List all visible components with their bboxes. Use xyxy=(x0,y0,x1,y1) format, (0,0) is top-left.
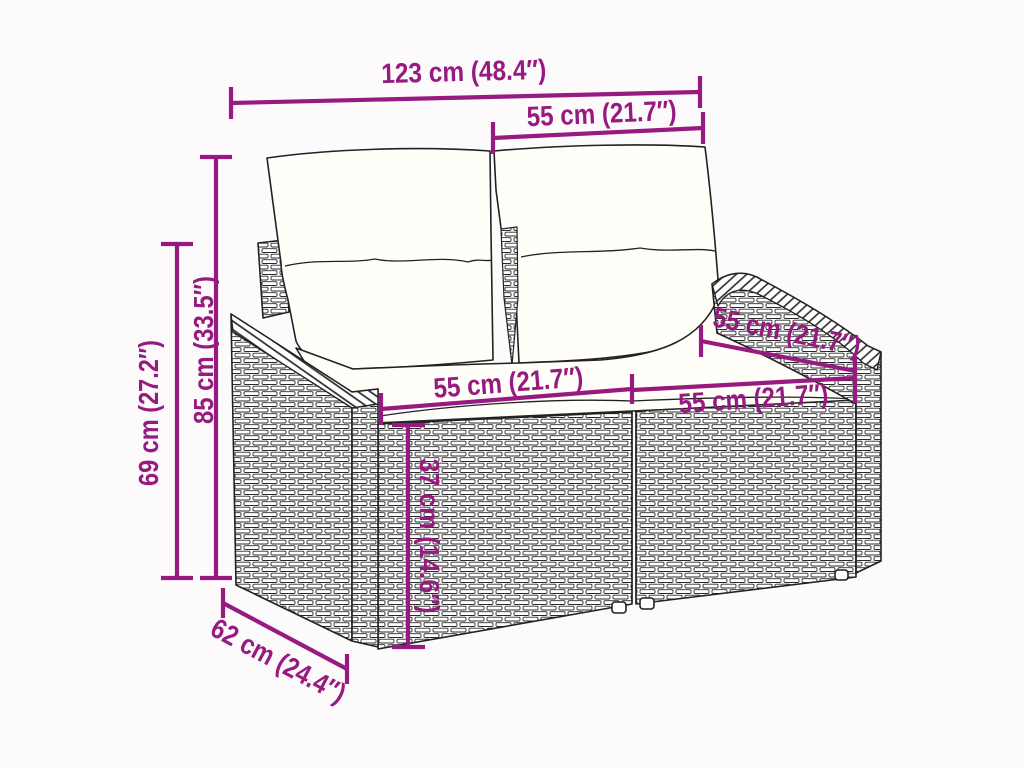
sofa-foot xyxy=(612,602,626,613)
label-back-cushion-width: 55 cm (21.7″) xyxy=(526,95,677,133)
sofa-dimension-drawing: 123 cm (48.4″) 55 cm (21.7″) 85 cm (33.5… xyxy=(0,0,1024,768)
left-armrest-front xyxy=(352,389,378,647)
sofa-foot xyxy=(835,570,848,580)
base-module-right xyxy=(636,400,856,604)
label-arm-height: 69 cm (27.2″) xyxy=(133,340,164,486)
back-cushion-right xyxy=(494,145,719,363)
label-total-width: 123 cm (48.4″) xyxy=(381,54,547,89)
label-seat-height: 37 cm (14.6″) xyxy=(414,459,445,614)
dimension-diagram: 123 cm (48.4″) 55 cm (21.7″) 85 cm (33.5… xyxy=(0,0,1024,768)
back-cushion-left xyxy=(267,149,493,369)
sofa-foot xyxy=(640,598,654,609)
label-total-height: 85 cm (33.5″) xyxy=(188,276,219,424)
